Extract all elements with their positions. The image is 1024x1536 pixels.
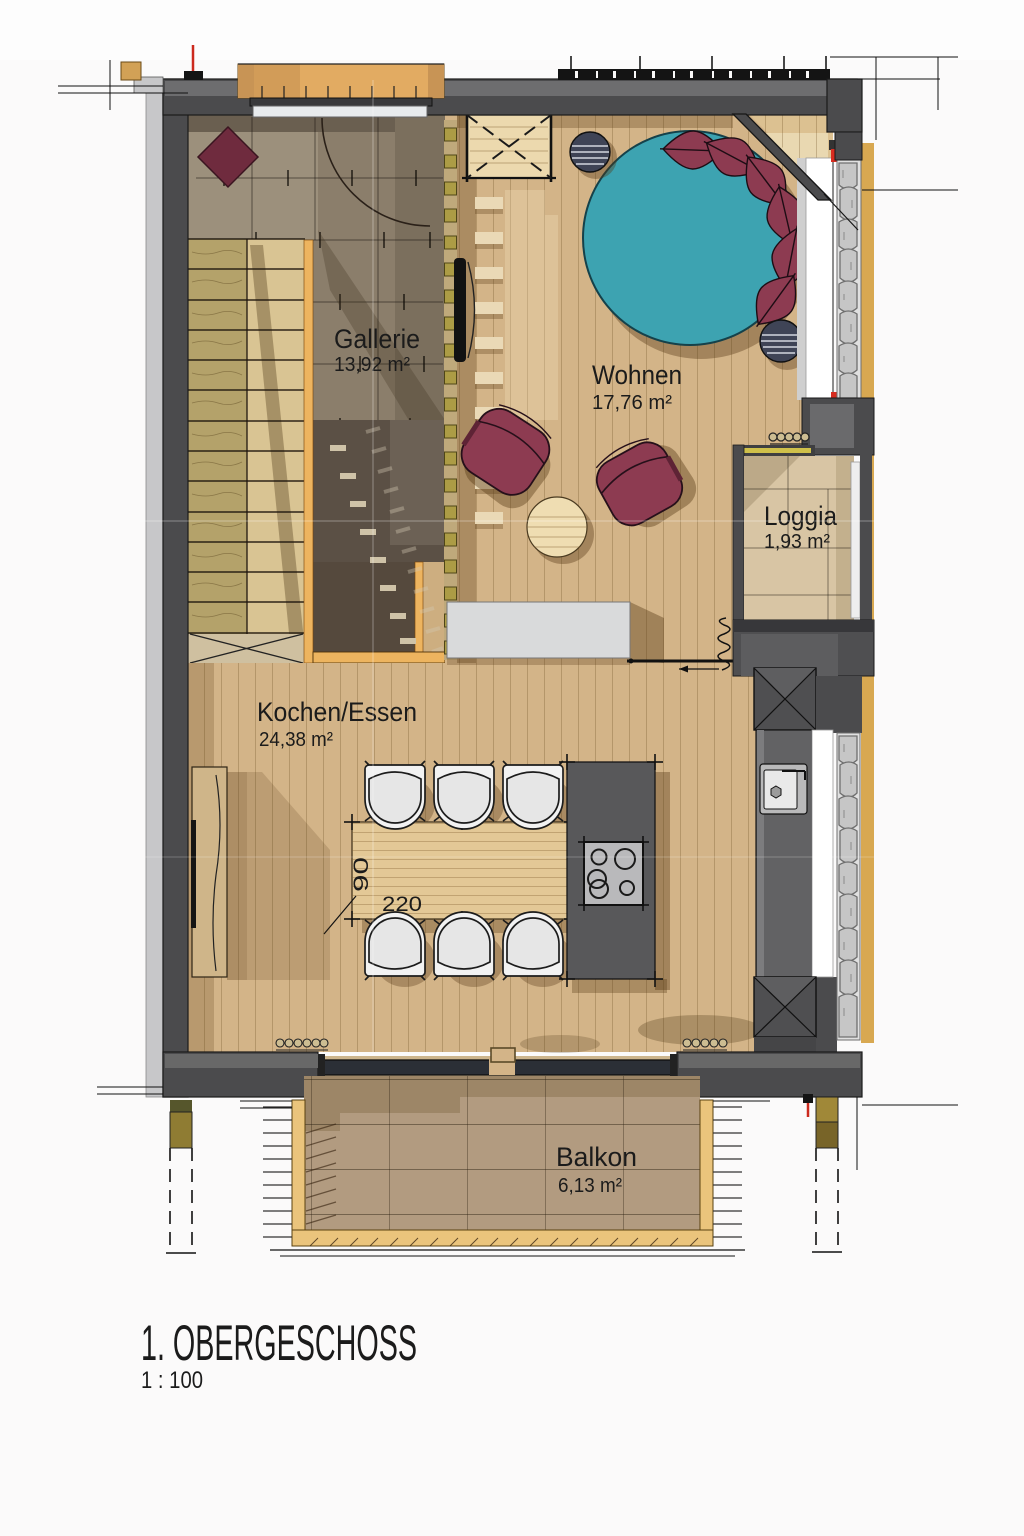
svg-text:Balkon: Balkon <box>556 1142 637 1172</box>
svg-text:1 : 100: 1 : 100 <box>141 1367 203 1394</box>
svg-text:Wohnen: Wohnen <box>592 360 682 390</box>
svg-text:1,93 m²: 1,93 m² <box>764 531 830 553</box>
svg-text:220: 220 <box>382 893 422 916</box>
svg-text:1. OBERGESCHOSS: 1. OBERGESCHOSS <box>141 1315 417 1371</box>
svg-text:90: 90 <box>350 857 373 892</box>
svg-text:24,38 m²: 24,38 m² <box>259 729 333 751</box>
svg-text:Loggia: Loggia <box>764 501 838 531</box>
svg-text:6,13 m²: 6,13 m² <box>558 1175 622 1197</box>
svg-text:17,76 m²: 17,76 m² <box>592 392 672 414</box>
svg-text:Gallerie: Gallerie <box>334 324 420 354</box>
svg-text:Kochen/Essen: Kochen/Essen <box>257 697 417 727</box>
